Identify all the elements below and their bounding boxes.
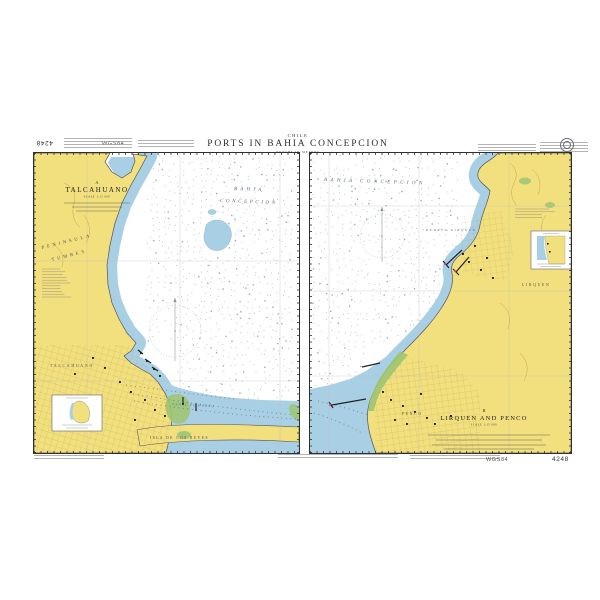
border-ticks bbox=[297, 153, 299, 453]
border-ticks bbox=[569, 153, 571, 453]
lirquen-penco-map: B LIRQUEN AND PENCO SCALE 1:15 000 BAHIA… bbox=[310, 153, 571, 453]
green-area bbox=[519, 178, 531, 185]
label-penco: PENCO bbox=[402, 412, 423, 416]
label-lirquen: LIRQUEN bbox=[522, 283, 550, 287]
sheet-number-bottom-right: 4248 bbox=[552, 456, 569, 463]
panel-a-scale: SCALE 1:15 000 bbox=[84, 196, 111, 199]
note-block bbox=[138, 140, 194, 149]
panel-talcahuano: A TALCAHUANO SCALE 1:15 000 PENINSULA TU… bbox=[33, 152, 300, 454]
label-talcahuano-town: TALCAHUANO bbox=[50, 364, 94, 368]
border-ticks bbox=[34, 153, 36, 453]
chart-page: 4248 WGS84 CHILE PORTS IN BAHIA CONCEPCI… bbox=[0, 0, 600, 600]
chart-country: CHILE bbox=[198, 133, 398, 138]
note-block bbox=[64, 138, 132, 150]
hydrographic-office-crest-icon bbox=[560, 138, 574, 152]
label-puerto-lirquen: PUERTO LIRQUEN bbox=[425, 228, 477, 232]
panel-a-title: TALCAHUANO bbox=[65, 186, 128, 194]
label-bahia: BAHIA bbox=[234, 187, 265, 193]
datum-label-bottom: WGS84 bbox=[486, 457, 508, 463]
chart-sheet: 4248 WGS84 CHILE PORTS IN BAHIA CONCEPCI… bbox=[28, 132, 572, 468]
panel-b-designator: B bbox=[482, 408, 485, 413]
note-block bbox=[478, 144, 536, 152]
green-area bbox=[545, 202, 555, 208]
imprint-note bbox=[278, 454, 398, 460]
imprint-note bbox=[34, 455, 104, 461]
chart-title: PORTS IN BAHIA CONCEPCION bbox=[198, 139, 398, 149]
inset-map-lirquen bbox=[531, 231, 571, 269]
shoal-patch bbox=[208, 210, 216, 215]
light-symbol bbox=[454, 270, 456, 272]
border-ticks bbox=[310, 153, 571, 155]
panel-b-title: LIRQUEN AND PENCO bbox=[440, 415, 527, 422]
border-ticks bbox=[310, 451, 571, 453]
border-ticks bbox=[34, 153, 299, 155]
sheet-number-top-left: 4248 bbox=[36, 139, 53, 146]
border-ticks bbox=[310, 153, 312, 453]
border-ticks bbox=[34, 451, 299, 453]
inset-map-talcahuano bbox=[52, 395, 102, 431]
label-isla-de-los-reyes: ISLA DE LOS REYES bbox=[150, 436, 209, 440]
panel-b-scale: SCALE 1:15 000 bbox=[471, 424, 498, 427]
chart-title-block: CHILE PORTS IN BAHIA CONCEPCION DEPTHS I… bbox=[198, 133, 398, 154]
light-symbol bbox=[444, 263, 446, 265]
light-symbol bbox=[329, 404, 331, 406]
talcahuano-map: A TALCAHUANO SCALE 1:15 000 PENINSULA TU… bbox=[34, 153, 299, 453]
panel-lirquen-penco: B LIRQUEN AND PENCO SCALE 1:15 000 BAHIA… bbox=[309, 152, 572, 454]
